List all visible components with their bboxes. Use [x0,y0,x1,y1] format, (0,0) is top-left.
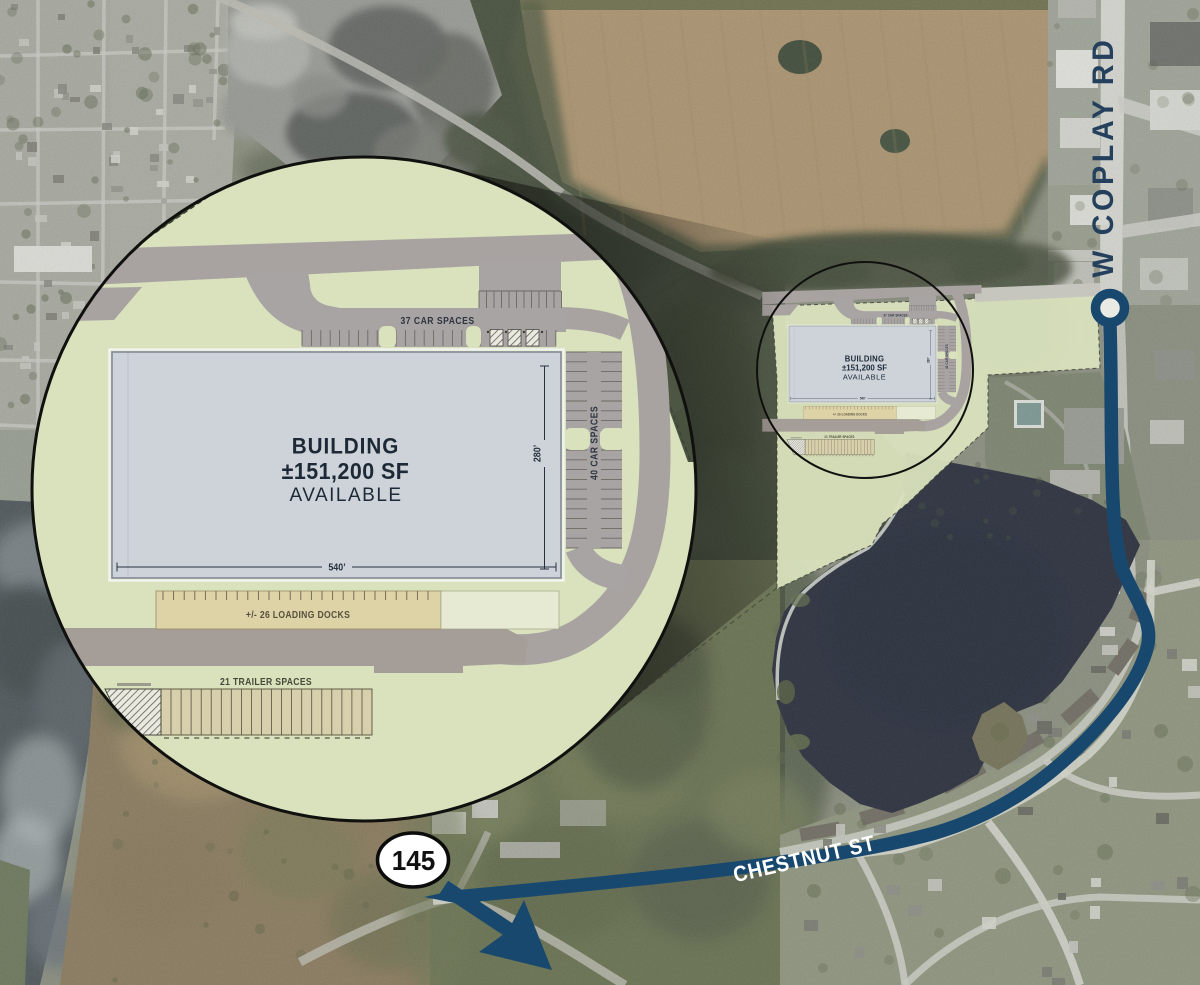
svg-text:145: 145 [392,845,436,876]
svg-text:W COPLAY RD: W COPLAY RD [1087,36,1120,277]
svg-text:±151,200 SF: ±151,200 SF [282,458,410,484]
svg-text:AVAILABLE: AVAILABLE [289,485,402,506]
svg-text:BUILDING: BUILDING [292,434,399,459]
